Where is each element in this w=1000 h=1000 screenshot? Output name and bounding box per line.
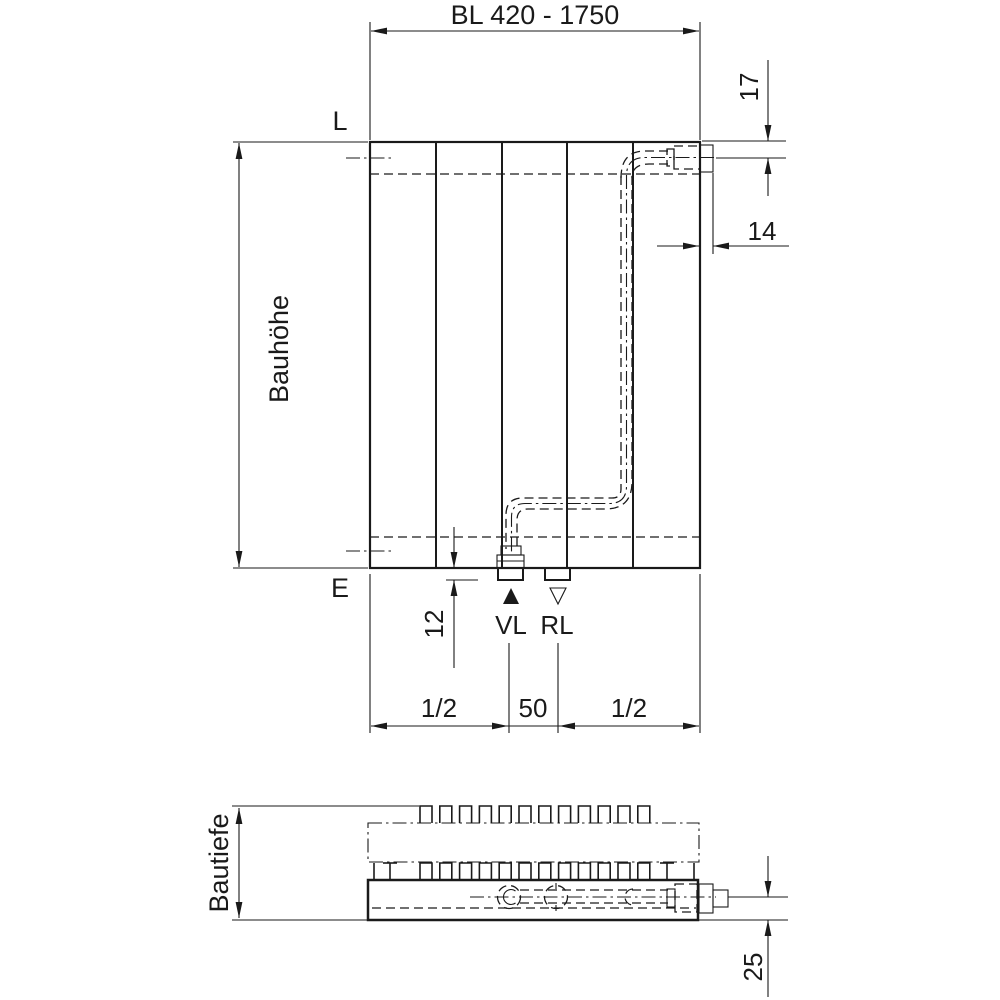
front-view: VL RL xyxy=(346,142,714,640)
dim-arrow xyxy=(683,28,699,35)
center-span-label: 50 xyxy=(519,693,548,723)
dim-arrow xyxy=(765,881,772,897)
fin-end-marks xyxy=(374,863,694,880)
dim-arrow xyxy=(236,551,243,567)
supply-label: VL xyxy=(495,610,527,640)
dimension-pipe-center-offset: 25 xyxy=(699,856,788,997)
front-fins xyxy=(420,863,650,880)
dim-arrow xyxy=(765,125,772,141)
dimension-bottom-offset: 12 xyxy=(419,527,478,668)
dim-arrow xyxy=(451,552,458,568)
height-dim-label: Bauhöhe xyxy=(264,295,294,403)
pipe-right-boundary xyxy=(517,176,632,549)
dim-arrow xyxy=(371,28,387,35)
return-label: RL xyxy=(540,610,573,640)
dim-arrow xyxy=(683,723,699,730)
connection-flange xyxy=(667,889,675,907)
dim-arrow xyxy=(451,580,458,596)
dim-arrow xyxy=(683,243,699,250)
right-span-label: 1/2 xyxy=(611,693,647,723)
supply-flow-icon xyxy=(503,588,519,604)
length-dim-label: BL 420 - 1750 xyxy=(451,0,620,30)
back-fins xyxy=(420,806,650,823)
technical-drawing-page: VL RL BL 420 - 1750 Bauhöhe L E 17 14 12 xyxy=(0,0,1000,1000)
top-offset-label: 17 xyxy=(734,73,764,102)
left-span-label: 1/2 xyxy=(421,693,457,723)
panel-divider-lines xyxy=(436,142,633,568)
second-panel-phantom-outline xyxy=(368,823,699,862)
pipe-left-boundary xyxy=(506,176,621,549)
dim-arrow xyxy=(236,143,243,159)
dim-arrow xyxy=(236,902,243,918)
dim-arrow xyxy=(765,158,772,174)
pipe-offset-label: 25 xyxy=(738,953,768,982)
dimension-height: Bauhöhe xyxy=(233,142,368,568)
dimension-nipple-depth: 14 xyxy=(657,173,789,254)
dim-arrow xyxy=(492,723,508,730)
return-stub xyxy=(545,568,570,580)
dimension-connection-spacing: 1/2 50 1/2 xyxy=(370,574,700,733)
dim-arrow xyxy=(559,723,575,730)
top-connection xyxy=(667,145,713,172)
return-flow-icon xyxy=(550,588,566,604)
connection-nipple-tip xyxy=(713,890,728,907)
dimension-length: BL 420 - 1750 xyxy=(370,0,700,140)
dimension-top-offset: 17 xyxy=(702,60,786,196)
dim-arrow xyxy=(713,243,729,250)
bottom-level-label: E xyxy=(331,573,349,603)
section-view xyxy=(368,806,728,920)
pipe-top-elbow-inner xyxy=(632,164,668,178)
front-panel-outline xyxy=(368,880,698,920)
hidden-pipe xyxy=(506,151,714,553)
dim-arrow xyxy=(371,723,387,730)
depth-dim-label: Bautiefe xyxy=(204,813,234,912)
dim-arrow xyxy=(765,920,772,936)
bottom-offset-label: 12 xyxy=(419,610,449,639)
radiator-technical-drawing: VL RL BL 420 - 1750 Bauhöhe L E 17 14 12 xyxy=(0,0,1000,1000)
connection-nipple xyxy=(699,884,713,913)
dimension-arrowheads xyxy=(236,28,772,936)
dim-arrow xyxy=(236,808,243,824)
connection-nipple xyxy=(700,145,713,172)
top-level-label: L xyxy=(332,106,347,136)
nipple-depth-label: 14 xyxy=(748,216,777,246)
supply-stub xyxy=(498,568,523,580)
pipe-centerline xyxy=(512,158,715,554)
radiator-outline xyxy=(370,142,700,568)
